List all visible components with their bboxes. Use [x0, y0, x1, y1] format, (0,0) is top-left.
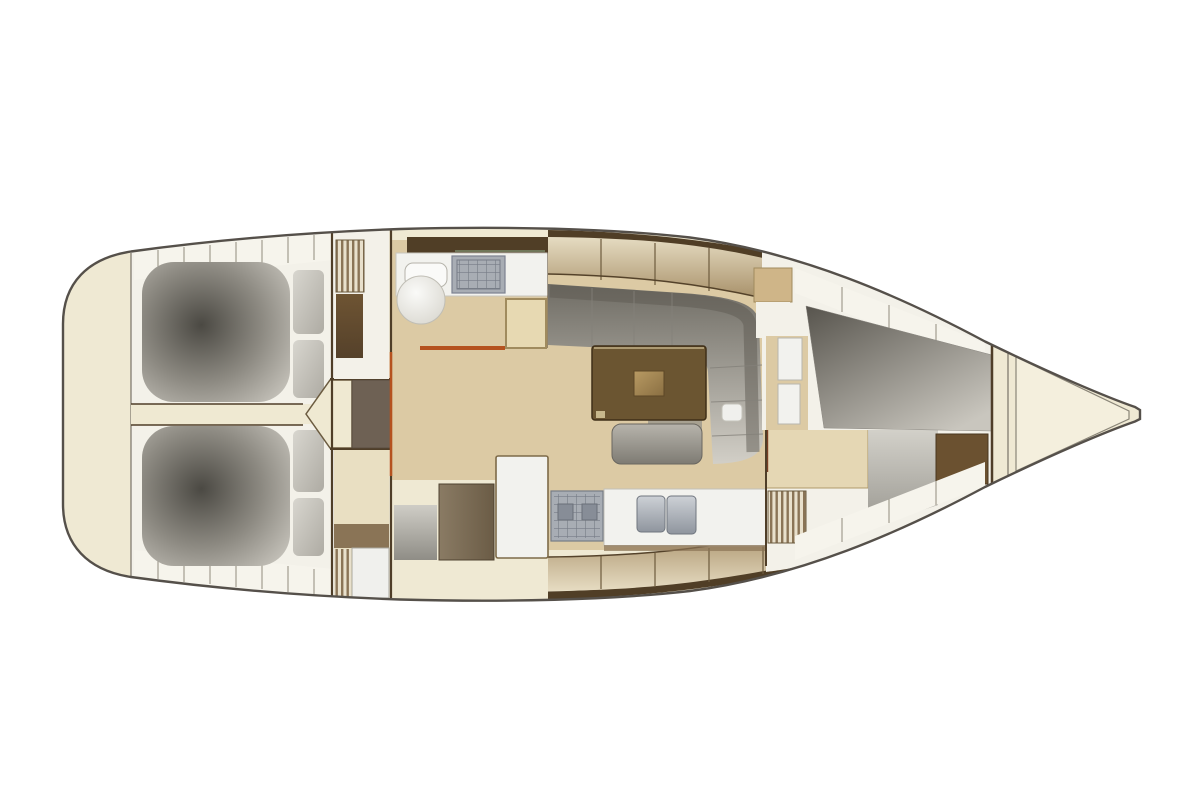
vanity-counter	[766, 428, 868, 488]
table-corner-detail	[596, 411, 605, 418]
fwd-step	[778, 384, 800, 424]
locker-cabinet	[336, 294, 363, 358]
pillow	[293, 270, 324, 334]
forward-cabin	[754, 250, 992, 431]
head-door	[352, 548, 389, 598]
aft-berth-starboard	[142, 426, 290, 566]
galley-stove	[551, 491, 603, 541]
burner	[558, 504, 573, 520]
anchor-well	[1016, 357, 1129, 471]
forward-head	[766, 425, 992, 572]
aft-head-port	[334, 229, 389, 379]
fridge	[496, 456, 548, 558]
hanging-locker-louver	[336, 240, 364, 292]
burner	[582, 504, 597, 520]
aft-cabin-port	[128, 228, 334, 404]
nav-station	[391, 237, 548, 480]
table-insert	[634, 371, 664, 396]
galley-gray-locker	[394, 505, 437, 560]
pillow	[293, 498, 324, 556]
saloon-table	[592, 346, 706, 432]
instrument-panel	[452, 256, 505, 293]
pillow	[293, 340, 324, 398]
galley-cabinet	[439, 484, 494, 560]
ceiling-hatch	[722, 404, 742, 421]
nav-seat	[397, 276, 445, 324]
fwd-step	[778, 338, 802, 380]
pillow	[293, 430, 324, 492]
shower-grate	[334, 549, 351, 597]
aft-cabin-starboard	[128, 424, 334, 600]
sink	[667, 496, 696, 534]
saloon-stool	[612, 424, 702, 464]
floorplan-svg	[0, 0, 1200, 800]
counter-front	[604, 545, 766, 551]
fwd-seat	[756, 302, 790, 338]
cabinet-band	[334, 524, 389, 548]
sink	[637, 496, 665, 532]
boat-floorplan-image	[0, 0, 1200, 800]
aft-head-starboard	[334, 450, 389, 598]
accent-strip	[420, 346, 505, 350]
transom-deck	[60, 228, 131, 600]
chart-table	[506, 299, 546, 348]
fwd-trim-locker	[754, 268, 792, 302]
aft-berth-port	[142, 262, 290, 402]
